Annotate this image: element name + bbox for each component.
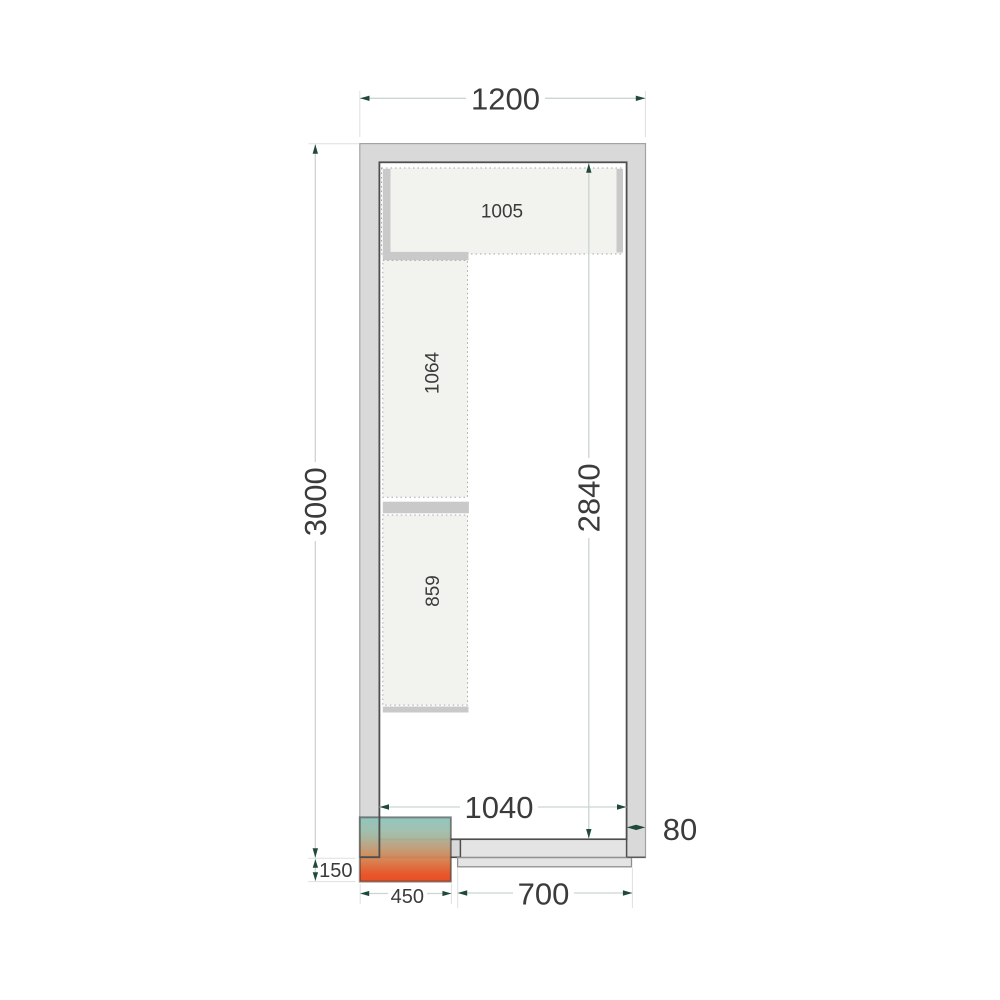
svg-text:700: 700 xyxy=(518,876,570,911)
svg-text:150: 150 xyxy=(319,860,352,882)
svg-text:2840: 2840 xyxy=(572,463,607,532)
svg-text:1040: 1040 xyxy=(465,790,534,825)
svg-text:3000: 3000 xyxy=(298,467,333,536)
svg-text:1064: 1064 xyxy=(423,351,444,394)
svg-text:80: 80 xyxy=(663,812,697,847)
svg-text:1200: 1200 xyxy=(471,82,540,117)
svg-text:450: 450 xyxy=(391,886,424,908)
svg-text:1005: 1005 xyxy=(481,202,523,223)
svg-text:859: 859 xyxy=(423,575,444,607)
